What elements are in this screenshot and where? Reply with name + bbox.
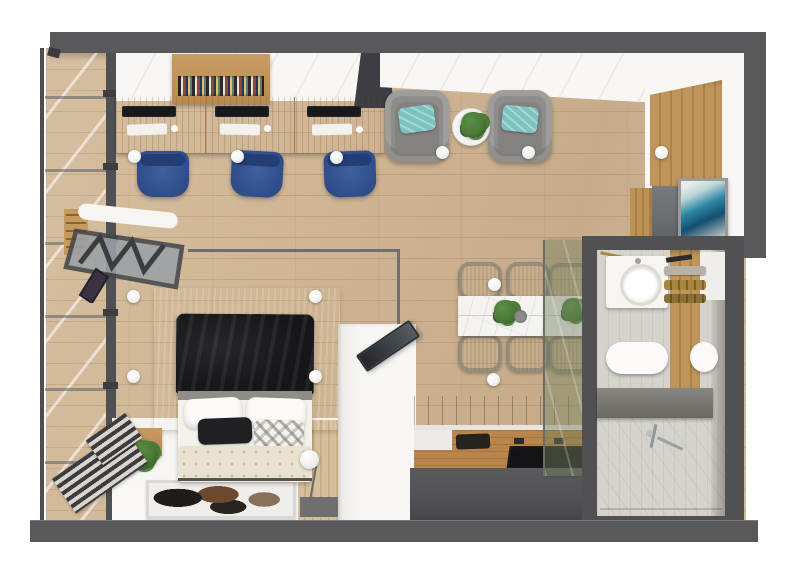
ceiling-light (487, 373, 500, 386)
mullion-joint (103, 163, 118, 170)
monitor (307, 106, 361, 117)
ceiling-light (128, 150, 141, 163)
kitchen-marble-section (414, 430, 452, 450)
shower-drain-line (600, 508, 722, 510)
round-basin (620, 264, 662, 306)
mullion-joint (103, 382, 118, 389)
bookshelf-books (178, 76, 264, 96)
armchair (488, 90, 552, 162)
teal-pillow (397, 104, 436, 135)
desk-seam (294, 97, 295, 153)
bed-bench-tufted (178, 446, 312, 478)
office-chair-back (141, 154, 185, 166)
window-outer-frame (40, 48, 44, 522)
bed-pillow-chevron (254, 419, 305, 449)
bathroom-door (698, 252, 725, 300)
keyboard (220, 124, 260, 136)
ceiling-light (522, 146, 535, 159)
ceiling-light (127, 370, 140, 383)
glazing-bar (45, 169, 106, 172)
desk-seam (205, 97, 206, 153)
keyboard (127, 123, 167, 135)
right-wall (744, 32, 766, 258)
ceiling-light (436, 146, 449, 159)
towel-bar (664, 266, 706, 275)
side-table-plant (461, 112, 487, 138)
gray-step-block (300, 497, 338, 517)
entry-wood-wall (650, 80, 722, 186)
white-roll (77, 203, 178, 229)
bottom-wall (30, 520, 758, 542)
shower-mixer-knob (646, 430, 653, 437)
bathroom-interior (597, 250, 725, 516)
towel-bar-gold (664, 294, 706, 303)
ceiling-light (231, 150, 244, 163)
purple-tube (80, 269, 108, 303)
cowhide-rug (146, 480, 296, 519)
mullion-joint (103, 309, 118, 316)
teal-pillow (501, 104, 540, 134)
power-socket (514, 438, 524, 444)
keyboard (312, 124, 352, 136)
bed-pillow-black (198, 417, 253, 445)
bed-black-throw (176, 314, 315, 395)
office-chair (137, 151, 189, 197)
towel-bar-gold (664, 280, 706, 290)
gray-bowl (514, 310, 527, 323)
glazing-bar (45, 315, 106, 318)
ceiling-light (655, 146, 668, 159)
floor-lamp-ball (300, 450, 319, 469)
dining-chair (458, 334, 502, 372)
kitchen-sink (456, 433, 491, 449)
monitor (215, 106, 269, 117)
ceiling-light (330, 151, 343, 164)
glazing-bar (45, 388, 106, 391)
glass-partition-line-h (188, 249, 400, 252)
top-wall (50, 32, 766, 53)
ceiling-light (309, 370, 322, 383)
monitor (122, 106, 176, 117)
basin-faucet (635, 258, 641, 264)
mouse (356, 126, 363, 133)
wall-hung-toilet (606, 342, 668, 374)
ceiling-light (488, 278, 501, 291)
ceiling-light (309, 290, 322, 303)
floorplan-render (0, 0, 800, 585)
toilet-reflection (690, 342, 718, 372)
mouse (171, 125, 178, 132)
mouse (264, 125, 271, 132)
bed-frame-edge (178, 478, 312, 481)
ceiling-light (127, 290, 140, 303)
folding-desk-truss (60, 203, 200, 303)
glazing-bar (45, 96, 106, 99)
gray-counter (597, 388, 713, 418)
